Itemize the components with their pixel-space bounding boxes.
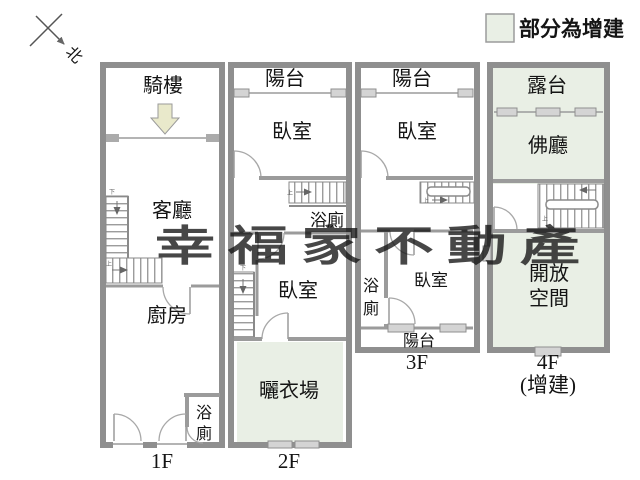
room-label-bath-3f-line2: 廁 [363, 299, 379, 318]
stairs-2f-down: 下 [233, 265, 254, 337]
room-label-balcony-2f: 陽台 [265, 67, 305, 90]
room-label-laundry: 曬衣場 [259, 379, 319, 402]
compass-icon: 北 [30, 14, 86, 67]
floor-label-3f: 3F [406, 350, 428, 374]
stairs-2f-up: 上 [287, 182, 346, 206]
room-label-bedroom-2f-rear: 臥室 [278, 279, 318, 302]
floor-label-4f: 4F [537, 350, 559, 374]
room-label-bath-1f-line1: 浴 [196, 404, 212, 422]
room-label-bedroom-2f-front: 臥室 [272, 120, 312, 143]
legend-swatch [486, 14, 514, 42]
stair-down-mark: 下 [109, 189, 115, 196]
room-label-balcony-3f-front: 陽台 [392, 67, 432, 90]
floor-label-1f: 1F [151, 449, 173, 473]
stair-up-mark: 上 [423, 197, 429, 205]
compass-north-label: 北 [62, 43, 86, 67]
stair-up-mark: 上 [106, 260, 112, 268]
floor-plan-page: 北 部分為增建 下 上 [0, 0, 640, 480]
room-label-bath-3f-line1: 浴 [363, 277, 379, 295]
room-label-terrace: 露台 [527, 74, 567, 97]
stairs-3f: 上 [420, 182, 474, 205]
room-label-bedroom-3f-rear: 臥室 [414, 271, 448, 290]
floor-label-2f: 2F [278, 449, 300, 473]
room-label-buddha-hall: 佛廳 [528, 134, 568, 157]
agency-watermark: 幸福家不動產 [155, 223, 593, 270]
room-label-living: 客廳 [152, 199, 192, 222]
floor-sublabel-4f: (增建) [520, 373, 576, 397]
room-label-open-space-line2: 空間 [529, 287, 569, 310]
stair-up-mark: 上 [287, 189, 293, 197]
floor-plan-canvas: 北 部分為增建 下 上 [0, 0, 640, 480]
room-label-bath-1f-line2: 廁 [196, 424, 212, 443]
stairs-4f: 上 [538, 184, 604, 228]
legend: 部分為增建 [486, 14, 624, 42]
legend-label: 部分為增建 [519, 17, 624, 41]
room-label-kitchen: 廚房 [147, 303, 187, 327]
floor-plan-3f: 上 陽台 臥室 浴 廁 臥室 陽台 3F [358, 65, 477, 374]
stair-up-mark: 上 [542, 215, 548, 223]
room-label-arcade: 騎樓 [143, 74, 183, 97]
room-label-balcony-3f-rear: 陽台 [403, 332, 435, 350]
room-label-bedroom-3f-front: 臥室 [397, 120, 437, 143]
